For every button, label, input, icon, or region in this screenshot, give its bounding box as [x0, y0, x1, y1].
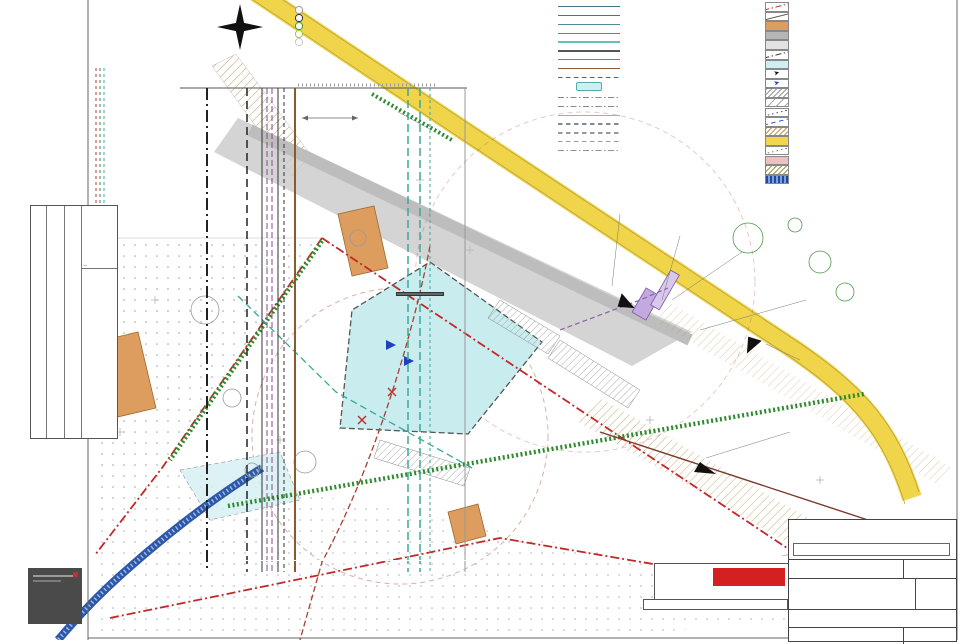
- legend-line: [765, 108, 789, 117]
- utility-legend-item: [558, 102, 768, 111]
- surveyor-block: /: [30, 205, 118, 439]
- utility-line-symbol: [558, 65, 620, 73]
- symbol-legend-item: ➤: [765, 69, 958, 79]
- badge-bar: [33, 575, 77, 577]
- symbol-legend-item: [765, 156, 958, 166]
- utility-legend-item: [558, 128, 768, 137]
- utility-line-symbol: [558, 138, 620, 146]
- firm-logo: [709, 564, 789, 600]
- utility-legend-item: [558, 29, 768, 38]
- utility-legend-item: [558, 64, 768, 73]
- building-label-box: [396, 292, 444, 296]
- survey-address: [47, 206, 65, 438]
- symbol-legend-item: [765, 136, 958, 146]
- badge-number: [28, 568, 82, 571]
- tree-class-icon: [295, 38, 303, 46]
- utility-line-symbol: [558, 74, 620, 82]
- greenery-legend-item: [295, 30, 475, 38]
- symbol-legend-item: [765, 2, 958, 12]
- symbol-legend-item: [765, 88, 958, 98]
- firm-logo-text: [713, 568, 785, 586]
- symbol-legend-item: [765, 60, 958, 70]
- survey-firm: [65, 206, 82, 438]
- utility-line-symbol: [558, 38, 620, 46]
- utility-line-symbol: [558, 111, 620, 119]
- utility-legend-item: [558, 11, 768, 20]
- legend-line: [765, 12, 789, 21]
- tree-class-icon: [295, 14, 303, 22]
- drawing-title-cell: [789, 628, 904, 644]
- kergliiklustee-avalik-kasutu-swatch: [765, 156, 789, 166]
- utility-line-symbol: [558, 20, 620, 28]
- title-block: [788, 519, 957, 642]
- personnel-table: [643, 599, 788, 610]
- stage-cell: [916, 579, 956, 609]
- symbol-legend-item: [765, 21, 958, 31]
- badge-dot: [73, 572, 78, 577]
- tree-class-icon: [295, 22, 303, 30]
- symbol-legend-item: [765, 108, 958, 118]
- project-address-cell: [789, 610, 956, 627]
- kinnistu-piir-swatch: [765, 12, 789, 22]
- utility-line-symbol: [558, 129, 620, 137]
- tehnov-rgu-servituudi-vajadu-swatch: [765, 98, 789, 108]
- symbol-legend-item: [765, 127, 958, 137]
- utility-line-symbol: [558, 56, 620, 64]
- greenery-legend-item: [295, 38, 475, 46]
- survey-type-cell: [82, 268, 117, 438]
- maantee-sanitaarkaitse-v-ndi-swatch: [765, 117, 789, 127]
- existing-utilities-list: [558, 93, 768, 155]
- utility-legend-item: [558, 137, 768, 146]
- utility-legend-item: [558, 46, 768, 55]
- symbol-legend-item: [765, 117, 958, 127]
- badge-bar2: [33, 580, 61, 582]
- utility-legend-item: [558, 2, 768, 11]
- planeeritud-n-htavuskolmnurk-swatch: [765, 88, 789, 98]
- utility-line-symbol: [558, 93, 620, 101]
- olemasolev-hoone-swatch: [765, 21, 789, 31]
- planeeritud-kraav-swatch: [765, 175, 789, 185]
- p-s-krundile-swatch: ➤: [765, 69, 789, 79]
- tree-class-icon: [295, 30, 303, 38]
- symbol-legend-item: [765, 31, 958, 41]
- planeeritud-ala-piir-swatch: [765, 2, 789, 12]
- tee-kaitsev-ndi-piir-swatch: [765, 108, 789, 118]
- utilities-legend: [558, 2, 768, 155]
- symbol-legend-item: [765, 40, 958, 50]
- symbol-legend-item: [765, 50, 958, 60]
- firm-contact: [655, 564, 709, 600]
- sheet-number-cell: [904, 560, 956, 578]
- remarks-row: [789, 520, 956, 560]
- utility-legend-item: [558, 111, 768, 120]
- greenery-legend-list: [295, 6, 475, 46]
- project-title: [789, 579, 916, 609]
- v-imalik-jalgteede-henduskoh-swatch: [765, 165, 789, 175]
- utility-line-symbol: [558, 82, 620, 90]
- symbols-legend-list: ➤➤: [765, 2, 958, 184]
- legend-line: [765, 2, 789, 11]
- planned-utilities-list: [558, 2, 768, 91]
- greenery-legend: [295, 4, 475, 46]
- utility-legend-item: [558, 20, 768, 29]
- access-arrow-icon: ➤: [773, 79, 781, 88]
- utility-legend-item: [558, 73, 768, 82]
- utility-legend-item: [558, 93, 768, 102]
- utility-legend-item: [558, 120, 768, 129]
- perspektiivne-avaliku-kasutu-swatch: [765, 136, 789, 146]
- survey-notes: [31, 206, 47, 438]
- planeeritud-piirdeaia-asukoh-swatch: [765, 146, 789, 156]
- symbol-legend-item: [765, 165, 958, 175]
- symbol-legend-item: [765, 175, 958, 185]
- hoone-v-imalik-asukoht-swatch: [765, 60, 789, 70]
- symbol-legend-item: [765, 12, 958, 22]
- greenery-legend-item: [295, 6, 475, 14]
- hoonestusala-piir-swatch: [765, 50, 789, 60]
- tree-class-icon: [295, 6, 303, 14]
- remark-text: [793, 543, 950, 556]
- utility-line-symbol: [558, 120, 620, 128]
- access-arrow-icon: ➤: [773, 70, 781, 79]
- symbol-legend-item: [765, 146, 958, 156]
- riigimaantee-teemaale-kavand-swatch: [765, 127, 789, 137]
- utility-legend-item: [558, 146, 768, 155]
- planeeritud-s-idutee-swatch: [765, 40, 789, 50]
- utility-legend-item: [558, 55, 768, 64]
- client-cell: [644, 600, 788, 610]
- olemasolev-s-idutee-swatch: [765, 31, 789, 41]
- symbol-legend-item: [765, 98, 958, 108]
- p-s-hoonesse-swatch: ➤: [765, 79, 789, 89]
- watermark-badge: [28, 568, 82, 624]
- scale-cell: [904, 628, 956, 644]
- utility-line-symbol: [558, 147, 620, 155]
- utility-legend-item: [558, 82, 768, 91]
- utility-line-symbol: [558, 2, 620, 10]
- symbol-legend-item: ➤: [765, 79, 958, 89]
- utility-line-symbol: [558, 11, 620, 19]
- legend-line: [765, 50, 789, 59]
- project-code: [789, 560, 904, 578]
- greenery-legend-item: [295, 14, 475, 22]
- utility-line-symbol: [558, 102, 620, 110]
- survey-job-cell: /: [82, 206, 117, 268]
- utility-line-symbol: [558, 47, 620, 55]
- greenery-legend-item: [295, 22, 475, 30]
- legend-line: [765, 146, 789, 155]
- oil-trap-icon: [576, 82, 602, 91]
- utility-legend-item: [558, 38, 768, 47]
- legend-line: [765, 118, 789, 127]
- notes-block: [232, 560, 514, 561]
- symbols-legend: ➤➤: [765, 2, 958, 184]
- design-firm-block: [654, 563, 790, 601]
- utility-line-symbol: [558, 29, 620, 37]
